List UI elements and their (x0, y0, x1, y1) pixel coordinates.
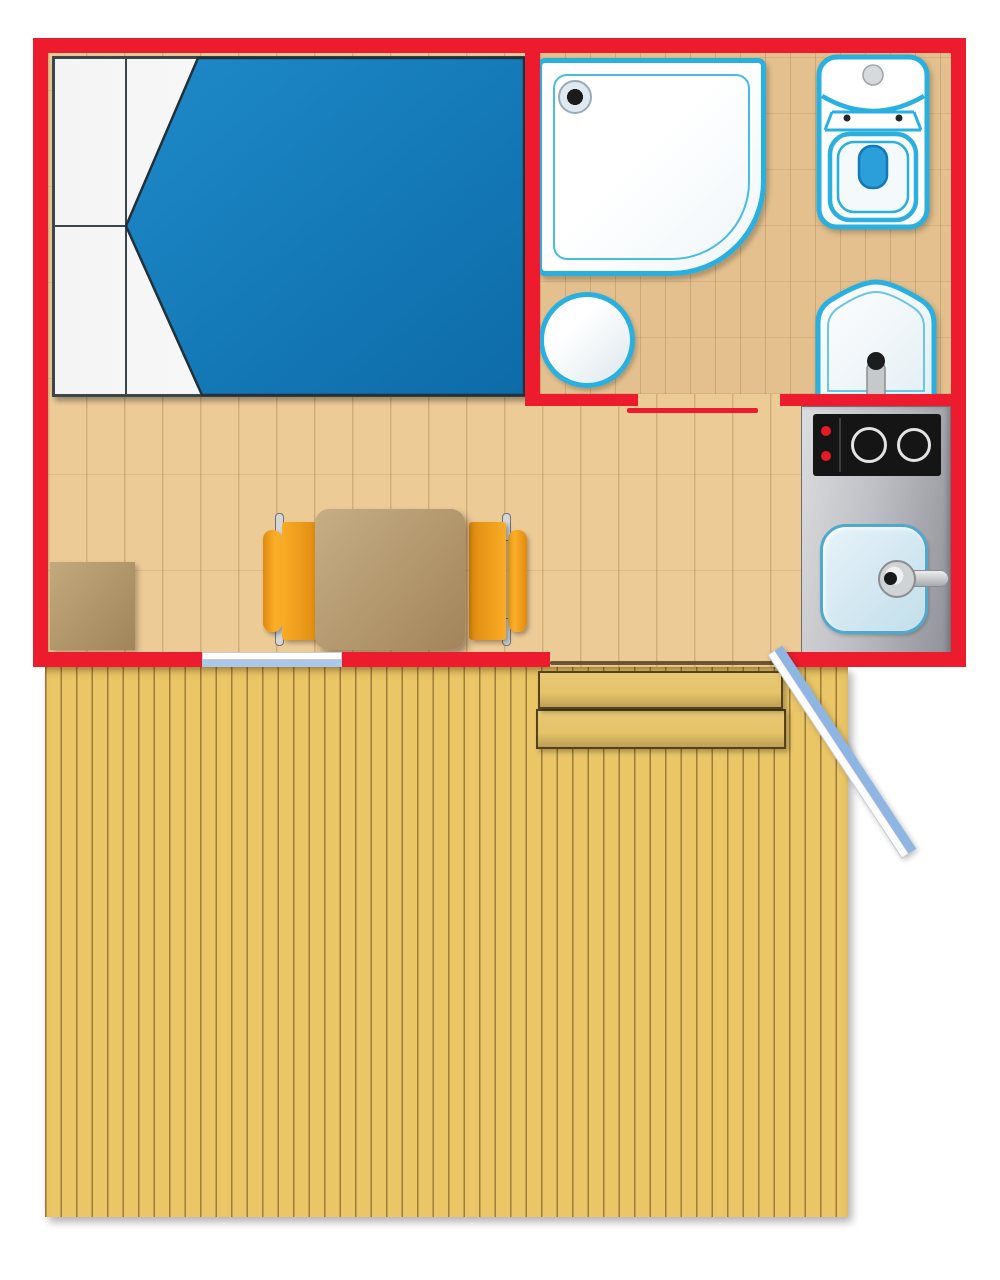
dining-table (315, 509, 465, 650)
chair-left-seat (282, 522, 319, 640)
bathroom-sliding-door (627, 408, 758, 413)
cooktop (813, 414, 941, 476)
chair-right-backrest (508, 530, 527, 632)
cooktop-knob-2 (821, 451, 831, 461)
chair-right-seat (469, 522, 506, 640)
wall-bottom-middle (342, 652, 550, 667)
wall-bedroom-bathroom (525, 53, 540, 406)
basin-tap-hole (867, 352, 885, 370)
entry-door-open (730, 625, 970, 875)
kitchen-faucet-hole (884, 572, 897, 585)
wall-right (951, 38, 966, 667)
door-leaf-blue (775, 646, 917, 854)
toilet (816, 54, 930, 230)
wall-bathroom-bottom-right (780, 394, 951, 406)
washbasin (808, 271, 944, 405)
wall-left (33, 38, 48, 667)
chair-left-backrest (263, 530, 282, 632)
cooktop-divider (839, 418, 841, 472)
deck (45, 667, 848, 1217)
stool (50, 562, 135, 650)
seat-hinge-right (896, 115, 903, 122)
double-bed (52, 56, 526, 397)
seat-hinge-left (844, 115, 851, 122)
burner-left (851, 427, 887, 463)
door-leaf-white (768, 651, 909, 858)
round-bath-mat (539, 292, 635, 388)
flush-button (863, 65, 883, 85)
shower-drain (558, 80, 592, 114)
wall-bottom-left (33, 652, 202, 667)
window-frame (202, 652, 342, 660)
wall-bathroom-bottom-left (525, 394, 638, 406)
floor-plan (0, 0, 1000, 1280)
burner-right (897, 428, 931, 462)
bowl-water (859, 146, 887, 188)
wall-top (33, 38, 966, 53)
blue-duvet (126, 58, 524, 395)
cooktop-knob-1 (821, 426, 831, 436)
window-glass (202, 660, 342, 667)
